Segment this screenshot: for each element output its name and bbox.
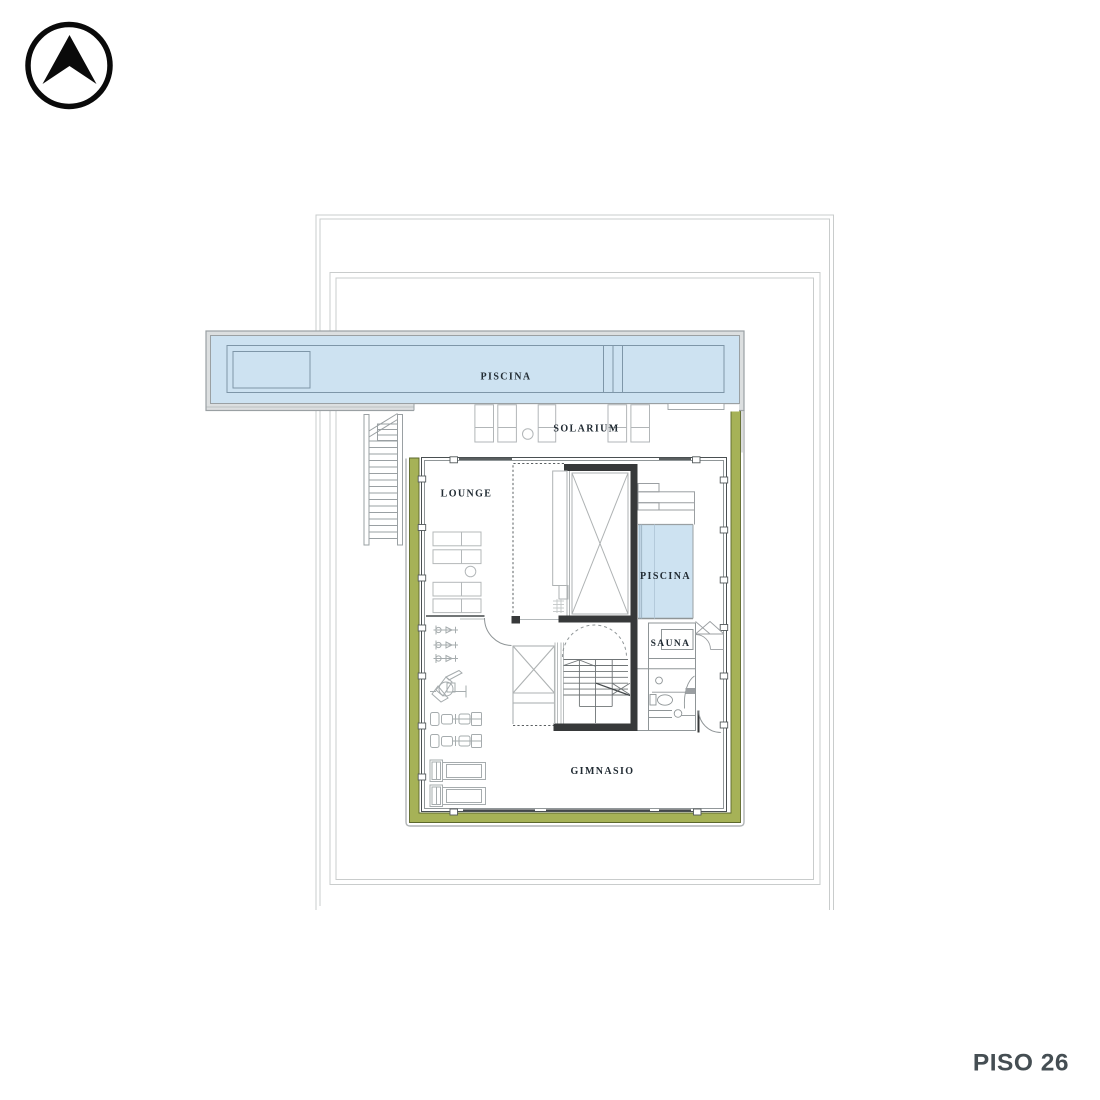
svg-text:SOLARIUM: SOLARIUM [553, 424, 619, 435]
svg-text:SAUNA: SAUNA [651, 639, 691, 649]
svg-text:LOUNGE: LOUNGE [441, 489, 493, 500]
svg-text:PISO 26: PISO 26 [973, 1050, 1069, 1077]
svg-text:GIMNASIO: GIMNASIO [571, 766, 635, 777]
svg-text:PISCINA: PISCINA [481, 372, 532, 383]
svg-text:PISCINA: PISCINA [640, 571, 691, 582]
